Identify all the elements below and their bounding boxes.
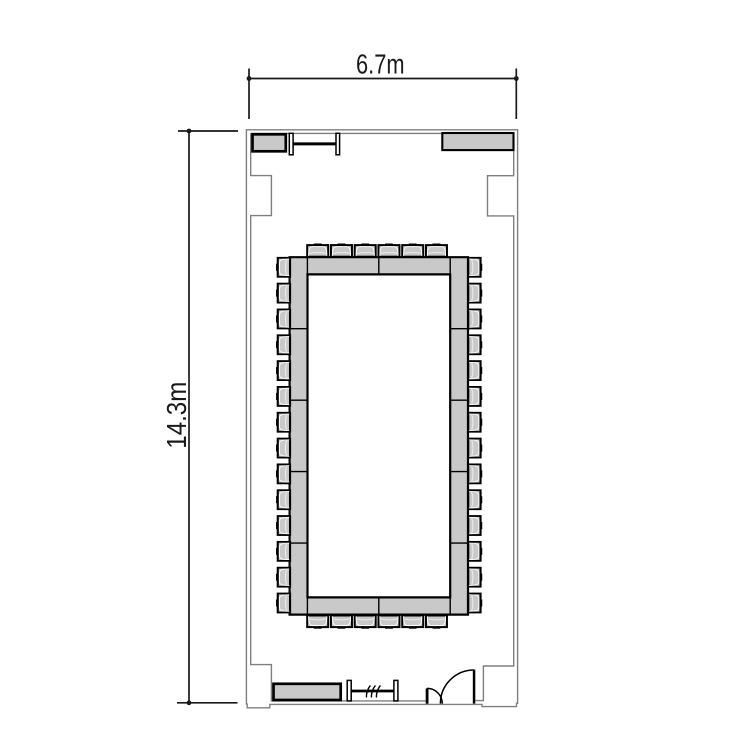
svg-text:14.3m: 14.3m [161, 382, 192, 449]
svg-text:6.7m: 6.7m [356, 48, 405, 79]
